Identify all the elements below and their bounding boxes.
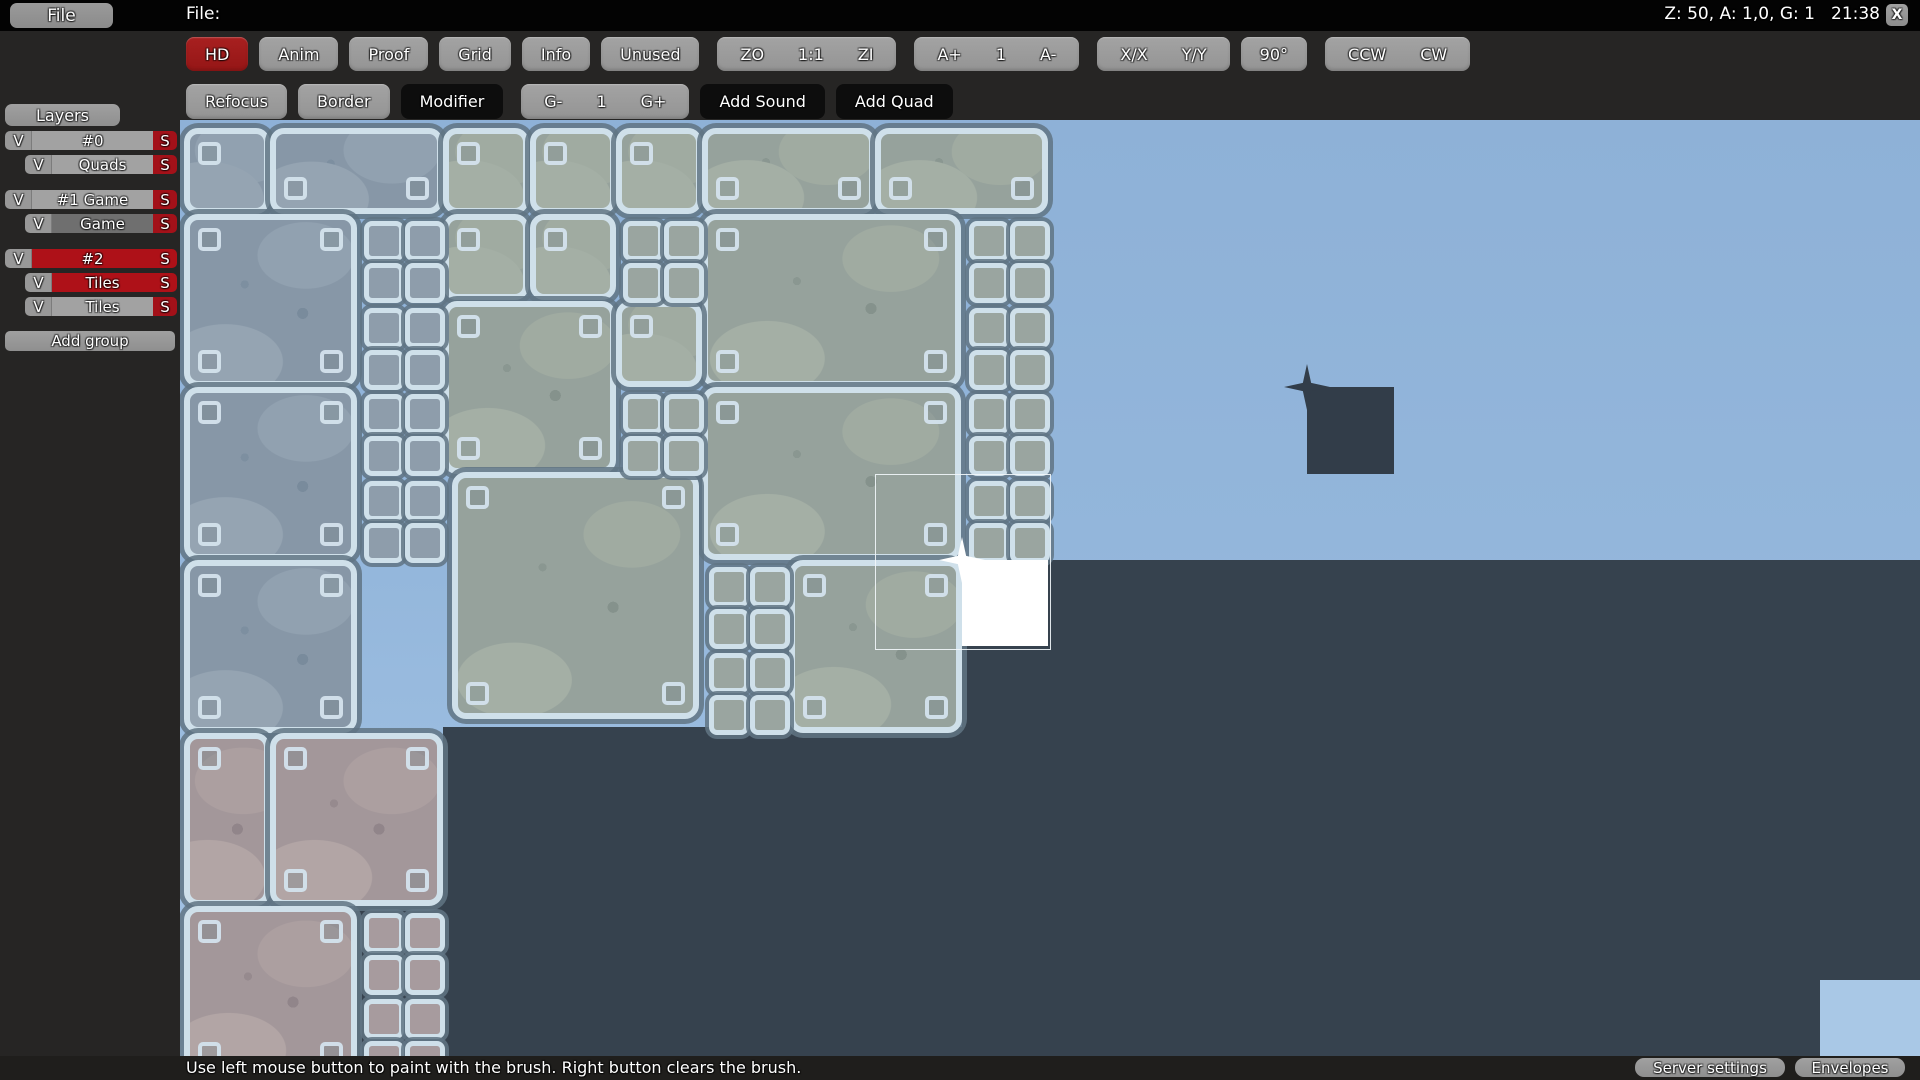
tile-corner-detail [466, 486, 489, 509]
layer-row-game[interactable]: VGameS [25, 214, 177, 233]
small-map-tile [709, 609, 749, 649]
tile-corner-detail [544, 142, 567, 165]
layers-panel: Layers V#0SVQuadsSV#1 GameSVGameSV#2SVTi… [0, 0, 180, 1080]
small-map-tile [969, 350, 1009, 390]
small-map-tile [364, 394, 404, 434]
layer-save-toggle[interactable]: S [153, 155, 177, 174]
underground-region [1048, 560, 1920, 1056]
layer-row--1-game[interactable]: V#1 GameS [5, 190, 177, 209]
tile-corner-detail [803, 574, 826, 597]
zoom-anim-grid-readout: Z: 50, A: 1,0, G: 1 [1664, 4, 1815, 24]
small-map-tile [405, 999, 445, 1039]
animation-speed-group: A+1A- [914, 37, 1079, 71]
small-map-tile [709, 567, 749, 607]
tile-corner-detail [457, 142, 480, 165]
layer-label[interactable]: Game [52, 214, 153, 233]
tile-corner-detail [924, 401, 947, 424]
clock-readout: 21:38 [1831, 4, 1880, 24]
small-map-tile [1010, 308, 1050, 348]
small-map-tile [750, 609, 790, 649]
flip-group: X/XY/Y [1097, 37, 1229, 71]
grid-size-group: G-1G+ [521, 84, 689, 119]
small-map-tile [750, 695, 790, 735]
map-tile [184, 733, 270, 906]
tile-corner-detail [457, 228, 480, 251]
layer-save-toggle[interactable]: S [153, 249, 177, 268]
small-map-tile [364, 523, 404, 563]
small-map-tile [405, 955, 445, 995]
small-map-tile [405, 308, 445, 348]
small-map-tile [623, 221, 663, 261]
tile-corner-detail [716, 177, 739, 200]
map-tile [184, 906, 357, 1056]
tile-corner-detail [716, 523, 739, 546]
layer-visibility-toggle[interactable]: V [5, 131, 32, 150]
grid-size-group-segment[interactable]: G+ [624, 92, 684, 111]
grid-size-group-segment[interactable]: 1 [579, 92, 623, 111]
toolbar-row-2: RefocusBorderModifierG-1G+Add SoundAdd Q… [186, 84, 953, 119]
map-tile [443, 301, 616, 474]
layer-label[interactable]: #1 Game [32, 190, 153, 209]
brush-preview-outline [875, 474, 1051, 650]
tile-corner-detail [457, 437, 480, 460]
layer-save-toggle[interactable]: S [153, 297, 177, 316]
tile-corner-detail [320, 523, 343, 546]
tile-corner-detail [198, 696, 221, 719]
layer-visibility-toggle[interactable]: V [25, 155, 52, 174]
tile-corner-detail [406, 747, 429, 770]
layer-visibility-toggle[interactable]: V [25, 273, 52, 292]
tile-corner-detail [320, 350, 343, 373]
anim-toggle[interactable]: Anim [259, 37, 338, 71]
rotate-group-segment[interactable]: CW [1403, 45, 1464, 64]
rotate-group-segment[interactable]: CCW [1331, 45, 1403, 64]
layer-save-toggle[interactable]: S [153, 273, 177, 292]
small-map-tile [623, 263, 663, 303]
layer-visibility-toggle[interactable]: V [5, 190, 32, 209]
tile-corner-detail [198, 920, 221, 943]
sky-corner-patch [1820, 980, 1920, 1056]
tile-corner-detail [284, 177, 307, 200]
map-tile [875, 128, 1048, 214]
map-tile [452, 472, 699, 719]
small-map-tile [364, 221, 404, 261]
tile-corner-detail [579, 437, 602, 460]
layer-row-quads[interactable]: VQuadsS [25, 155, 177, 174]
layer-visibility-toggle[interactable]: V [25, 297, 52, 316]
tile-corner-detail [925, 696, 948, 719]
small-map-tile [969, 221, 1009, 261]
tile-corner-detail [406, 869, 429, 892]
layer-row--0[interactable]: V#0S [5, 131, 177, 150]
tile-corner-detail [198, 350, 221, 373]
layer-visibility-toggle[interactable]: V [25, 214, 52, 233]
small-map-tile [364, 350, 404, 390]
tile-corner-detail [466, 682, 489, 705]
tile-corner-detail [662, 486, 685, 509]
small-map-tile [364, 999, 404, 1039]
small-map-tile [1010, 350, 1050, 390]
layer-label[interactable]: Quads [52, 155, 153, 174]
tile-corner-detail [579, 315, 602, 338]
info-toggle[interactable]: Info [522, 37, 590, 71]
layer-visibility-toggle[interactable]: V [5, 249, 32, 268]
add-sound-button[interactable]: Add Sound [700, 84, 824, 119]
envelopes-button[interactable]: Envelopes [1795, 1058, 1905, 1077]
map-tile [184, 387, 357, 560]
map-tile [702, 128, 875, 214]
small-map-tile [1010, 221, 1050, 261]
layer-row-tiles[interactable]: VTilesS [25, 273, 177, 292]
tile-corner-detail [198, 228, 221, 251]
map-tile [184, 214, 357, 387]
small-map-tile [405, 913, 445, 953]
tile-corner-detail [406, 177, 429, 200]
underground-region [443, 727, 1049, 1056]
small-map-tile [664, 263, 704, 303]
map-tile [702, 214, 961, 387]
layer-row--2[interactable]: V#2S [5, 249, 177, 268]
small-map-tile [969, 308, 1009, 348]
hd-toggle[interactable]: HD [186, 37, 248, 71]
layer-label[interactable]: Tiles [52, 273, 153, 292]
tile-corner-detail [320, 401, 343, 424]
tile-corner-detail [803, 696, 826, 719]
tile-corner-detail [284, 747, 307, 770]
tile-corner-detail [924, 350, 947, 373]
small-map-tile [405, 523, 445, 563]
layer-label[interactable]: #0 [32, 131, 153, 150]
map-tile [184, 560, 357, 733]
tile-corner-detail [716, 401, 739, 424]
add-group-button[interactable]: Add group [5, 331, 175, 351]
small-map-tile [405, 221, 445, 261]
add-quad-button[interactable]: Add Quad [836, 84, 953, 119]
tile-corner-detail [320, 228, 343, 251]
zoom-group: ZO1:1ZI [717, 37, 896, 71]
map-tile [270, 733, 443, 906]
tile-corner-detail [662, 682, 685, 705]
tile-corner-detail [924, 228, 947, 251]
map-tile [443, 214, 529, 300]
small-map-tile [364, 308, 404, 348]
status-bar: Use left mouse button to paint with the … [0, 1056, 1920, 1080]
small-map-tile [405, 350, 445, 390]
layer-save-toggle[interactable]: S [153, 131, 177, 150]
layer-save-toggle[interactable]: S [153, 190, 177, 209]
small-map-tile [364, 436, 404, 476]
tile-corner-detail [630, 315, 653, 338]
small-map-tile [405, 263, 445, 303]
file-path-label: File: [186, 4, 220, 24]
map-tile [616, 128, 702, 214]
small-map-tile [405, 1041, 445, 1056]
tile-corner-detail [716, 350, 739, 373]
zoom-group-segment[interactable]: 1:1 [781, 45, 841, 64]
small-map-tile [364, 955, 404, 995]
map-tile [443, 128, 529, 214]
layers-panel-header: Layers [5, 104, 120, 126]
top-menu-bar: File File: Z: 50, A: 1,0, G: 121:38 X [0, 0, 1920, 31]
small-map-tile [709, 653, 749, 693]
animation-speed-group-segment[interactable]: A+ [920, 45, 978, 64]
tile-corner-detail [198, 747, 221, 770]
tile-corner-detail [838, 177, 861, 200]
rotate-amount-button[interactable]: 90° [1241, 37, 1307, 71]
small-map-tile [623, 436, 663, 476]
tile-corner-detail [198, 142, 221, 165]
map-tile [530, 128, 616, 214]
editor-status-readout: Z: 50, A: 1,0, G: 121:38 [1664, 4, 1880, 24]
refocus-button[interactable]: Refocus [186, 84, 287, 119]
tile-corner-detail [320, 696, 343, 719]
tile-corner-detail [320, 1042, 343, 1056]
flip-group-segment[interactable]: X/X [1103, 45, 1164, 64]
layer-label[interactable]: #2 [32, 249, 153, 268]
border-button[interactable]: Border [298, 84, 390, 119]
animation-speed-group-segment[interactable]: A- [1023, 45, 1073, 64]
small-map-tile [969, 436, 1009, 476]
tile-corner-detail [889, 177, 912, 200]
animation-speed-group-segment[interactable]: 1 [979, 45, 1023, 64]
grid-size-group-segment[interactable]: G- [527, 92, 579, 111]
rotate-group: CCWCW [1325, 37, 1470, 71]
small-map-tile [405, 394, 445, 434]
small-map-tile [1010, 263, 1050, 303]
map-tile [530, 214, 616, 300]
small-map-tile [405, 436, 445, 476]
tile-corner-detail [198, 523, 221, 546]
small-map-tile [664, 436, 704, 476]
placed-dark-tile [1307, 387, 1394, 474]
layer-row-tiles[interactable]: VTilesS [25, 297, 177, 316]
map-tile [270, 128, 443, 214]
small-map-tile [623, 394, 663, 434]
tile-corner-detail [544, 228, 567, 251]
small-map-tile [364, 913, 404, 953]
small-map-tile [1010, 394, 1050, 434]
tile-corner-detail [630, 142, 653, 165]
small-map-tile [364, 263, 404, 303]
server-settings-button[interactable]: Server settings [1635, 1058, 1785, 1077]
toolbar-row-1: HDAnimProofGridInfoUnusedZO1:1ZIA+1A-X/X… [186, 37, 1470, 71]
tile-corner-detail [198, 401, 221, 424]
map-tile [616, 301, 702, 387]
zoom-group-segment[interactable]: ZI [841, 45, 891, 64]
tile-corner-detail [457, 315, 480, 338]
small-map-tile [1010, 436, 1050, 476]
map-canvas[interactable] [180, 120, 1920, 1056]
proof-toggle[interactable]: Proof [349, 37, 428, 71]
layer-save-toggle[interactable]: S [153, 214, 177, 233]
small-map-tile [969, 394, 1009, 434]
grid-toggle[interactable]: Grid [439, 37, 511, 71]
status-hint-text: Use left mouse button to paint with the … [186, 1058, 801, 1077]
small-map-tile [750, 653, 790, 693]
tile-corner-detail [320, 920, 343, 943]
tile-corner-detail [716, 228, 739, 251]
small-map-tile [664, 221, 704, 261]
tile-corner-detail [320, 574, 343, 597]
zoom-group-segment[interactable]: ZO [723, 45, 781, 64]
map-tile [184, 128, 270, 214]
file-menu-button[interactable]: File [10, 3, 113, 28]
small-map-tile [664, 394, 704, 434]
tile-corner-detail [1011, 177, 1034, 200]
layer-label[interactable]: Tiles [52, 297, 153, 316]
flip-group-segment[interactable]: Y/Y [1165, 45, 1224, 64]
tile-corner-detail [198, 574, 221, 597]
small-map-tile [405, 481, 445, 521]
small-map-tile [364, 1041, 404, 1056]
small-map-tile [709, 695, 749, 735]
modifier-button[interactable]: Modifier [401, 84, 504, 119]
unused-toggle[interactable]: Unused [601, 37, 699, 71]
small-map-tile [364, 481, 404, 521]
tile-corner-detail [198, 1042, 221, 1056]
small-map-tile [969, 263, 1009, 303]
tile-corner-detail [284, 869, 307, 892]
small-map-tile [750, 567, 790, 607]
close-icon[interactable]: X [1886, 4, 1908, 26]
